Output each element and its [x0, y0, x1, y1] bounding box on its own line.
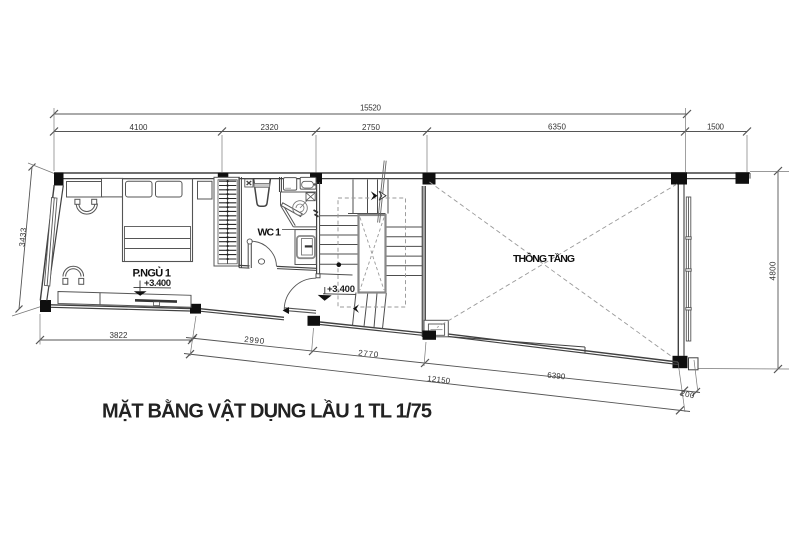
svg-text:2750: 2750 [362, 123, 381, 132]
svg-text:1500: 1500 [707, 122, 725, 131]
svg-text:6390: 6390 [547, 371, 566, 382]
svg-text:6350: 6350 [548, 122, 567, 131]
svg-text:3822: 3822 [110, 331, 129, 340]
svg-text:MẶT BẰNG VẬT DỤNG LẦU 1 TL 1/: MẶT BẰNG VẬT DỤNG LẦU 1 TL 1/75 [102, 399, 432, 423]
svg-text:+3.400: +3.400 [327, 284, 355, 295]
svg-text:WC 1: WC 1 [258, 227, 282, 239]
svg-text:15520: 15520 [360, 104, 382, 113]
svg-text:3433: 3433 [18, 227, 29, 247]
svg-text:4100: 4100 [130, 123, 149, 132]
svg-text:4800: 4800 [769, 261, 778, 281]
svg-text:2320: 2320 [261, 123, 280, 132]
svg-text:THÔNG TẦNG: THÔNG TẦNG [513, 252, 575, 265]
